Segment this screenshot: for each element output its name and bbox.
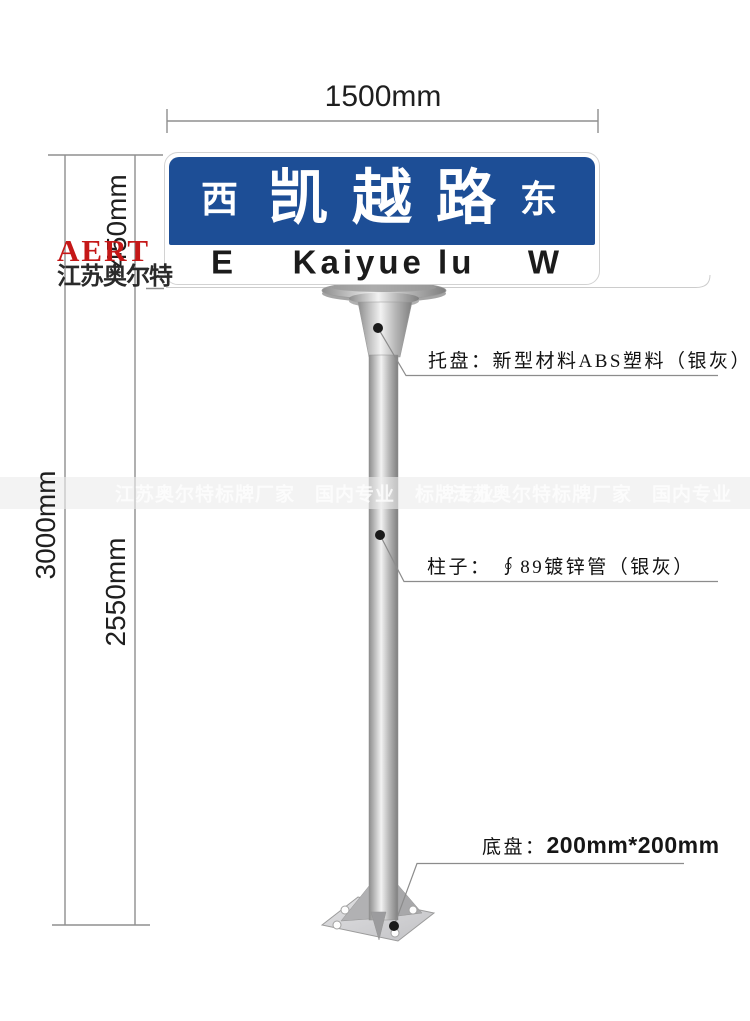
- logo-company-text: 江苏奥尔特: [57, 265, 172, 289]
- base-annotation: 底盘： 200mm*200mm: [482, 834, 720, 857]
- tray-marker-dot: [373, 323, 383, 333]
- logo-brand-text: AERT: [57, 235, 172, 266]
- tray-annotation: 托盘：新型材料ABS塑料（银灰）: [428, 352, 750, 371]
- pole-graphic: [369, 355, 398, 920]
- sign-direction-right-en: W: [528, 245, 559, 278]
- total-height-dimension-label: 3000mm: [30, 471, 62, 580]
- base-marker-dot: [389, 921, 399, 931]
- sign-direction-east-cn: 东: [520, 181, 557, 218]
- pole-height-dimension-label: 2550mm: [100, 538, 132, 647]
- sign-pinyin-row: E Kaiyue lu W: [165, 243, 599, 284]
- width-dimension-label: 1500mm: [325, 80, 442, 114]
- base-annotation-value: 200mm*200mm: [547, 834, 720, 857]
- diagram-canvas: 江苏奥尔特标牌厂家 国内专业 标牌专业 江苏奥尔特标牌厂家 国内专业 标牌专业 …: [0, 0, 750, 1021]
- base-annotation-label: 底盘：: [482, 838, 547, 857]
- sign-blue-panel: 西 凯越路 东: [169, 157, 595, 245]
- watermark-band: 江苏奥尔特标牌厂家 国内专业 标牌专业 江苏奥尔特标牌厂家 国内专业 标牌专业: [0, 477, 750, 509]
- pole-marker-dot: [375, 530, 385, 540]
- watermark-text-left: 江苏奥尔特标牌厂家 国内专业 标牌专业: [115, 480, 495, 507]
- base-leader-line: [394, 864, 684, 927]
- tray-cone: [358, 302, 412, 357]
- sign-tray-graphic: [322, 282, 446, 357]
- street-sign: 西 凯越路 东 E Kaiyue lu W: [164, 152, 600, 285]
- company-logo: AERT 江苏奥尔特: [57, 235, 172, 289]
- pole-annotation: 柱子： ∮89镀锌管（银灰）: [427, 558, 695, 577]
- watermark-text-right: 江苏奥尔特标牌厂家 国内专业 标牌专业: [452, 480, 750, 507]
